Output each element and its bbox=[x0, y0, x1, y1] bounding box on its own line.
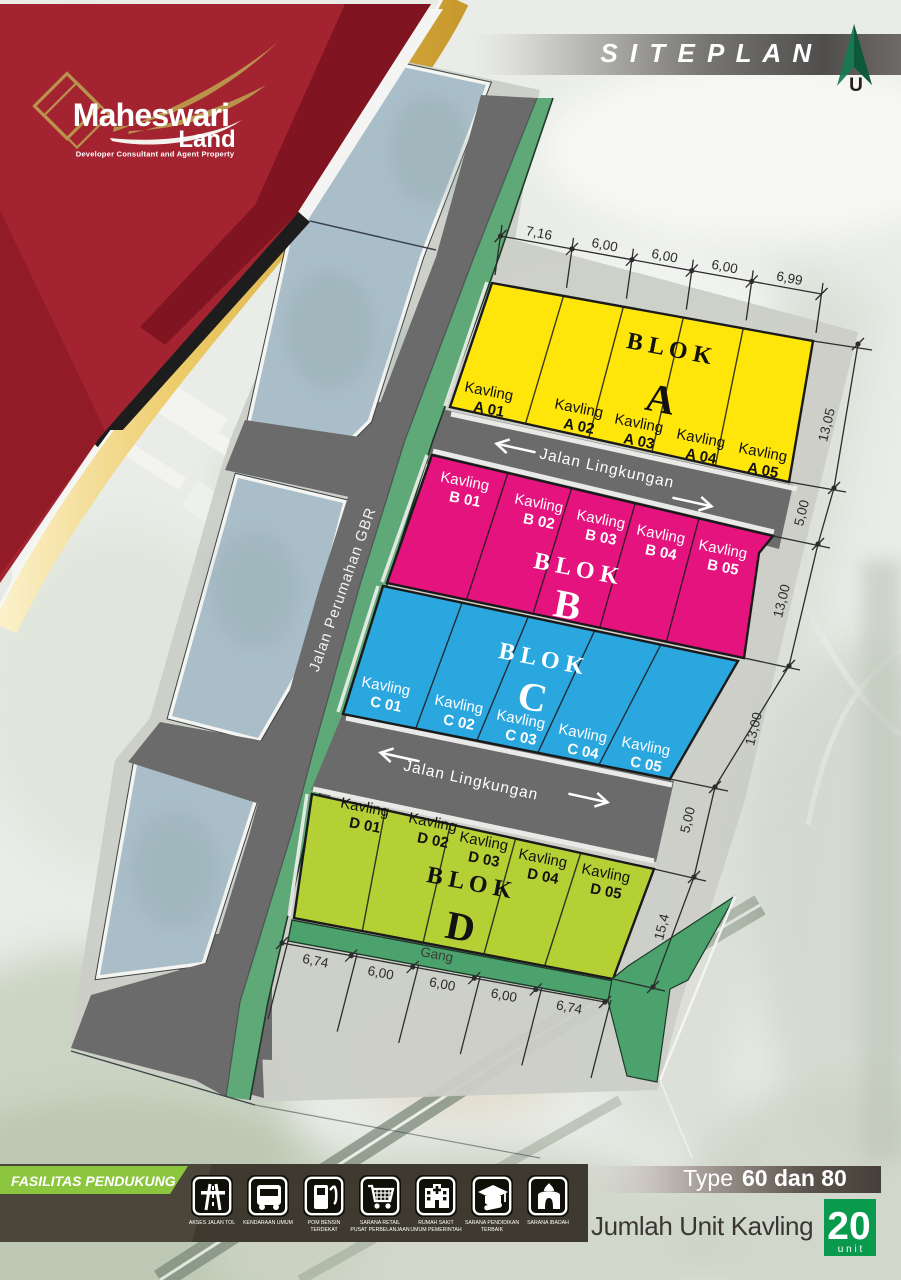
svg-text:S I T E P L A N: S I T E P L A N bbox=[600, 38, 813, 68]
svg-text:RUMAH SAKIT: RUMAH SAKIT bbox=[418, 1220, 454, 1226]
svg-text:20: 20 bbox=[827, 1205, 870, 1248]
svg-text:u n i t: u n i t bbox=[838, 1244, 863, 1255]
svg-text:SARANA PENDIDIKAN: SARANA PENDIDIKAN bbox=[465, 1220, 519, 1226]
svg-text:AKSES JALAN TOL: AKSES JALAN TOL bbox=[189, 1220, 235, 1226]
svg-text:FASILITAS PENDUKUNG: FASILITAS PENDUKUNG bbox=[11, 1173, 176, 1189]
svg-text:POM BENSIN: POM BENSIN bbox=[308, 1220, 341, 1226]
svg-text:KENDARAAN UMUM: KENDARAAN UMUM bbox=[243, 1220, 293, 1226]
svg-text:Jumlah Unit Kavling: Jumlah Unit Kavling bbox=[591, 1211, 813, 1241]
svg-text:60 dan 80: 60 dan 80 bbox=[742, 1165, 847, 1191]
svg-text:PUSAT PERBELANJAAN: PUSAT PERBELANJAAN bbox=[350, 1227, 409, 1233]
svg-text:SARANA RETAIL: SARANA RETAIL bbox=[360, 1220, 400, 1226]
svg-text:TERBAIK: TERBAIK bbox=[481, 1227, 504, 1233]
svg-text:Type: Type bbox=[683, 1165, 733, 1191]
svg-text:Developer Consultant and Agent: Developer Consultant and Agent Property bbox=[76, 150, 235, 159]
svg-text:UMUM PEMERINTAH: UMUM PEMERINTAH bbox=[410, 1227, 461, 1233]
svg-text:U: U bbox=[849, 75, 863, 96]
svg-text:TERDEKAT: TERDEKAT bbox=[310, 1227, 338, 1233]
svg-text:SARANA IBADAH: SARANA IBADAH bbox=[527, 1220, 569, 1226]
